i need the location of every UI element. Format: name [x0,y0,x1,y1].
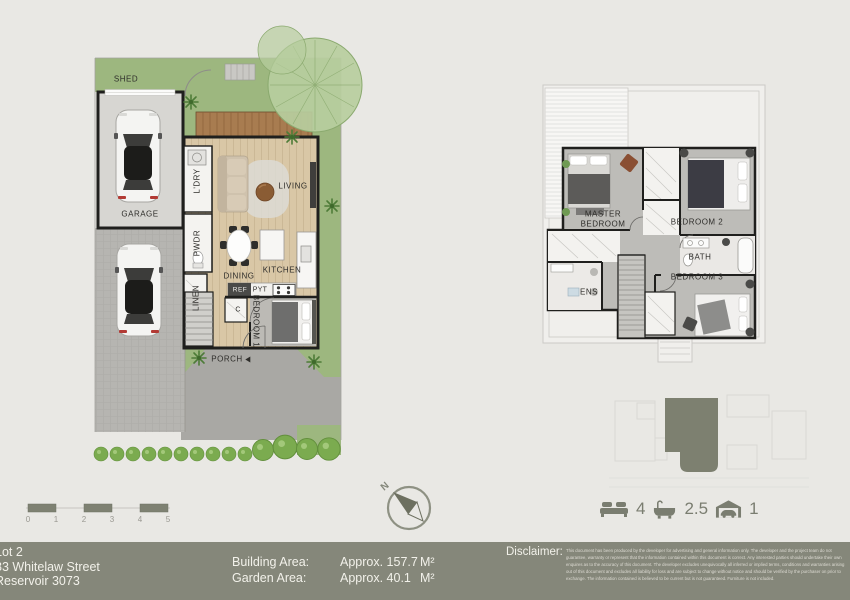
site-locator-map [607,383,812,495]
label-bath: BATH [689,253,712,262]
tv-unit [310,162,316,208]
label-powder: PWDR [193,230,202,256]
label-ensuite: ENS [580,288,598,297]
baths-count: 2.5 [684,499,708,519]
scale-tick-1: 1 [54,515,59,524]
bath-icon [652,499,677,519]
master-line1: MASTER [581,210,626,220]
garden-area-value: Approx. 40.1 [340,571,411,585]
north-label: N [379,480,392,493]
garage-icon [715,499,742,519]
ground-floor-plan [93,56,347,470]
label-shed: SHED [114,75,138,84]
label-bedroom2: BEDROOM 2 [671,218,724,227]
label-porch: PORCH [211,355,250,364]
kitchen-bench [297,232,316,288]
label-laundry: L'DRY [193,168,202,193]
porch-text: PORCH [211,355,242,364]
scale-tick-2: 2 [82,515,87,524]
beds-count: 4 [636,499,645,519]
garden-area-unit: M² [420,571,435,585]
property-address: Lot 2 83 Whitelaw Street Reservoir 3073 [0,545,100,589]
scale-tick-4: 4 [138,515,143,524]
cars-count: 1 [749,499,758,519]
label-dining: DINING [224,272,255,281]
sofa [218,156,248,212]
robe-left [548,230,620,262]
label-linen: LINEN [192,285,201,311]
garden-steps [225,64,255,80]
car-in-garage [114,110,162,202]
scale-tick-3: 3 [110,515,115,524]
label-living: LIVING [278,182,307,191]
label-master-bedroom: MASTER BEDROOM [581,210,626,229]
floorplan-page: SHED GARAGE L'DRY PWDR LINEN LIVING DINI… [0,0,850,600]
street-address: 83 Whitelaw Street [0,560,100,575]
label-pantry: PYT [253,287,268,294]
bedroom2-bed [680,149,755,211]
first-floor-plan [538,78,780,378]
label-fridge: REF [233,287,248,294]
scale-bar: 0 1 2 3 4 5 [25,497,171,524]
tree-canopy-small [258,26,306,74]
label-bedroom3: BEDROOM 3 [671,273,724,282]
scale-tick-0: 0 [26,515,31,524]
label-bedroom1: BEDROOM 1 [252,295,261,348]
subject-lot-shape [665,398,718,472]
suburb: Reservoir 3073 [0,574,100,589]
disclaimer-label: Disclaimer: [506,546,563,558]
scale-tick-5: 5 [166,515,171,524]
building-area-label: Building Area: [232,555,309,569]
label-cupboard: C [235,307,240,314]
label-garage: GARAGE [121,210,158,219]
building-area-unit: M² [420,555,435,569]
kitchen-island [260,230,284,260]
coffee-table [256,183,274,201]
footer-bar: Lot 2 83 Whitelaw Street Reservoir 3073 … [0,542,850,600]
bed-icon [599,499,629,519]
north-compass-icon: N [376,476,440,540]
master-line2: BEDROOM [581,219,626,229]
cooktop-icon [273,285,295,296]
bedroom1-bed [272,300,316,344]
lot-number: Lot 2 [0,545,100,560]
entry-arrow-icon [246,356,251,362]
label-kitchen: KITCHEN [263,266,302,275]
stairs-first [618,255,645,338]
disclaimer-text: This document has been produced by the d… [566,547,846,582]
car-on-driveway [115,244,163,336]
robe-top [643,148,680,200]
dwelling-summary: 4 2.5 1 [599,499,759,519]
garden-area-label: Garden Area: [232,571,306,585]
building-area-value: Approx. 157.7 [340,555,418,569]
